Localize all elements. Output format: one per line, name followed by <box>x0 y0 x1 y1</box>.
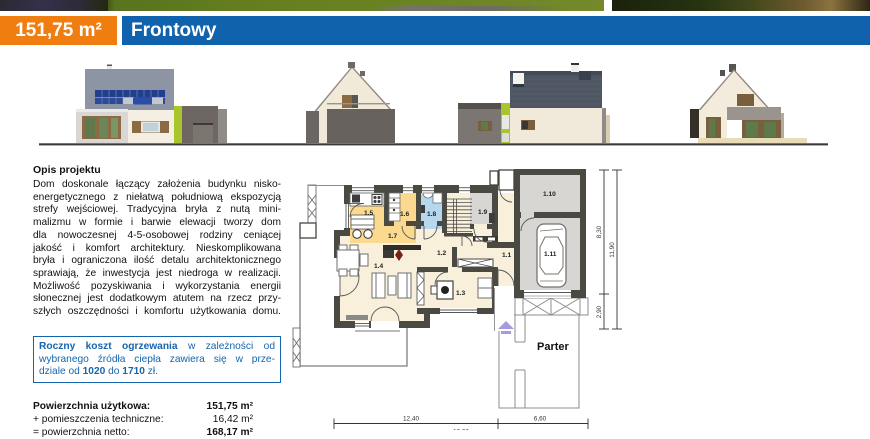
svg-text:1.6: 1.6 <box>400 211 409 218</box>
svg-text:1.11: 1.11 <box>544 251 557 258</box>
svg-text:1.8: 1.8 <box>427 211 436 218</box>
svg-text:6,60: 6,60 <box>534 416 547 423</box>
svg-text:11,90: 11,90 <box>609 242 616 258</box>
svg-text:1.7: 1.7 <box>388 233 397 240</box>
svg-text:1.3: 1.3 <box>456 290 465 297</box>
svg-text:Parter: Parter <box>537 341 570 353</box>
svg-text:8,30: 8,30 <box>596 225 603 238</box>
svg-text:1.10: 1.10 <box>543 191 556 198</box>
svg-text:1.4: 1.4 <box>374 263 383 270</box>
svg-text:12,40: 12,40 <box>403 416 419 423</box>
svg-text:1.2: 1.2 <box>437 250 446 257</box>
svg-text:1.5: 1.5 <box>364 210 373 217</box>
svg-text:2,90: 2,90 <box>596 305 603 318</box>
svg-text:1.1: 1.1 <box>502 252 511 259</box>
svg-text:1.9: 1.9 <box>478 209 487 216</box>
